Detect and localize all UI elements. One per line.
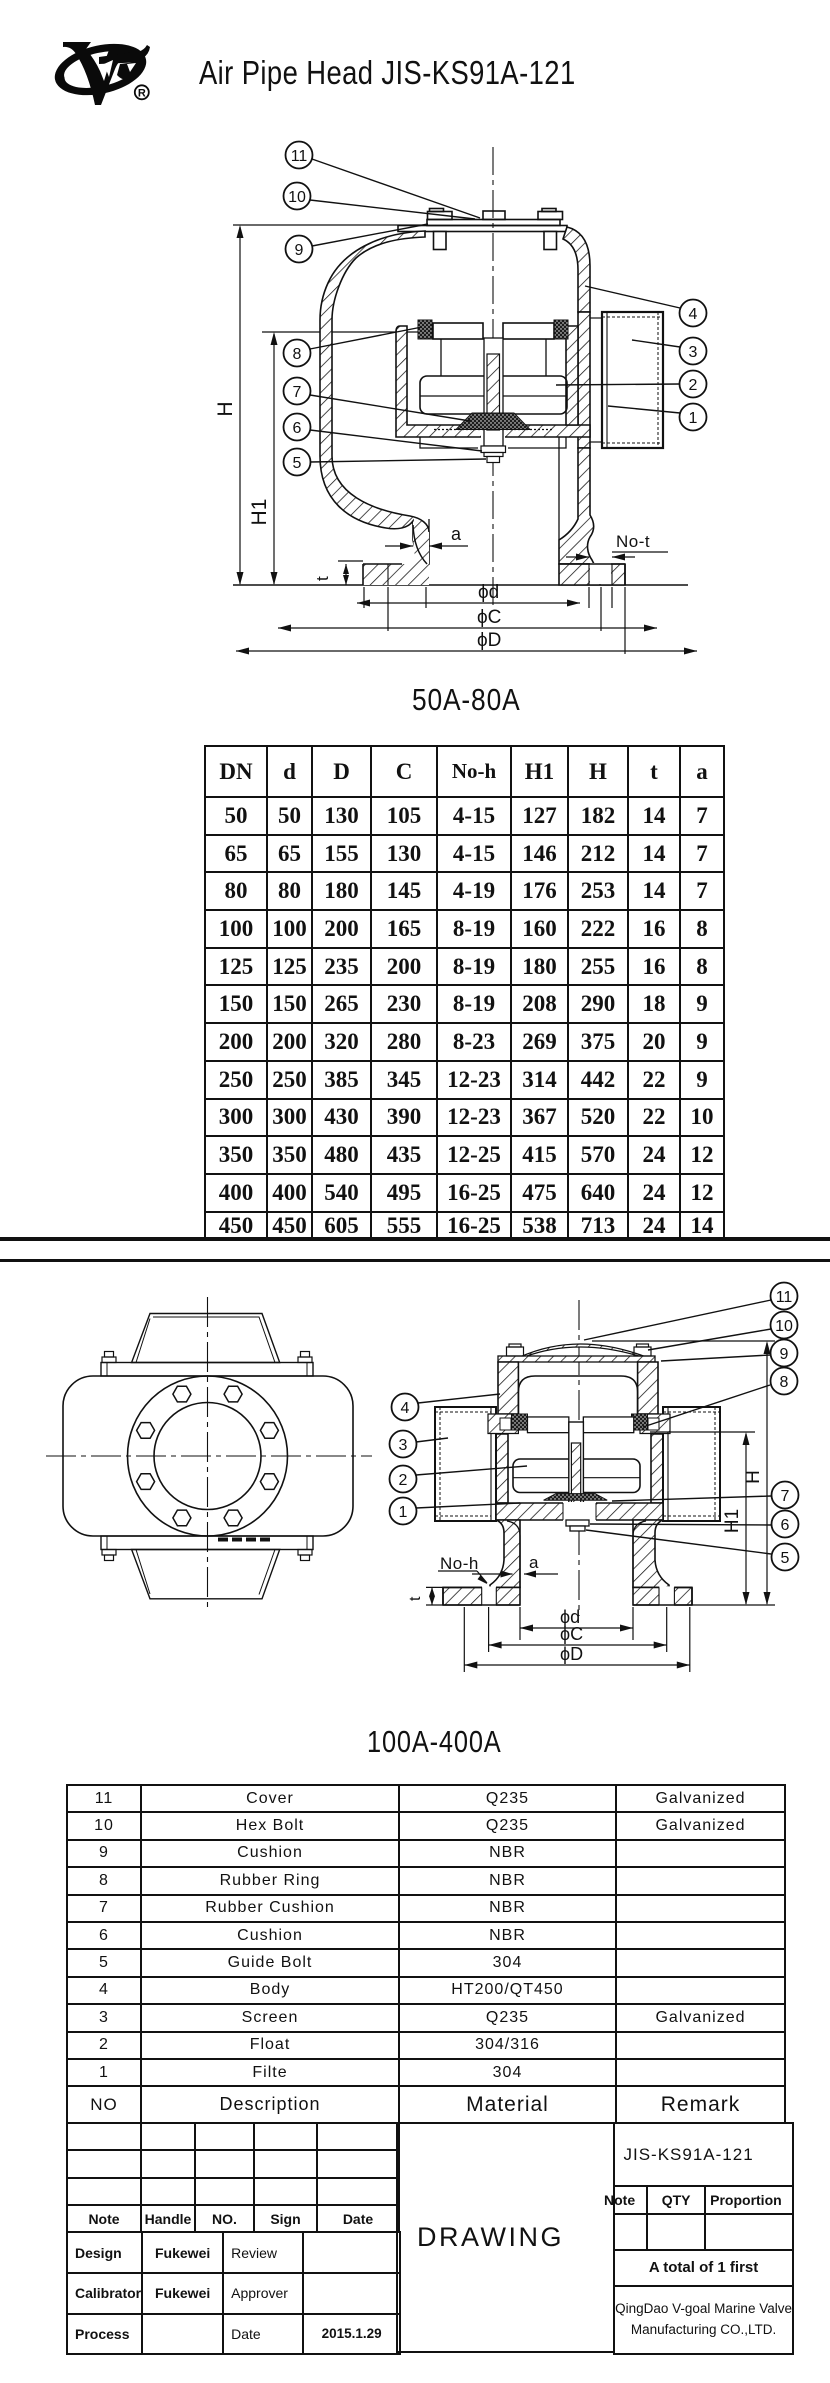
svg-text:ϕC: ϕC (477, 607, 501, 628)
svg-text:2: 2 (689, 377, 698, 394)
svg-text:9: 9 (295, 242, 304, 259)
svg-text:a: a (529, 1553, 539, 1572)
svg-text:3: 3 (689, 344, 698, 361)
svg-text:10: 10 (775, 1318, 793, 1335)
svg-text:5: 5 (781, 1550, 790, 1567)
svg-text:8: 8 (293, 346, 302, 363)
svg-text:1: 1 (689, 410, 698, 427)
svg-text:7: 7 (293, 384, 302, 401)
svg-text:1: 1 (399, 1504, 408, 1521)
svg-text:R: R (138, 88, 146, 100)
svg-text:4: 4 (401, 1400, 410, 1417)
svg-text:a: a (451, 524, 462, 544)
svg-text:H: H (214, 401, 237, 416)
svg-text:ϕD: ϕD (560, 1644, 583, 1664)
svg-text:ϕD: ϕD (477, 630, 501, 651)
svg-text:ϕd: ϕd (478, 582, 499, 603)
svg-text:H1: H1 (722, 1509, 743, 1533)
svg-text:6: 6 (293, 420, 302, 437)
svg-text:H1: H1 (248, 499, 271, 526)
svg-text:11: 11 (291, 148, 308, 165)
svg-text:6: 6 (781, 1517, 790, 1534)
svg-text:7: 7 (781, 1488, 790, 1505)
svg-text:9: 9 (780, 1346, 789, 1363)
svg-text:5: 5 (293, 455, 302, 472)
svg-text:t: t (313, 576, 332, 581)
svg-text:4: 4 (689, 306, 698, 323)
svg-text:ϕC: ϕC (560, 1624, 583, 1644)
svg-text:3: 3 (399, 1437, 408, 1454)
svg-text:t: t (407, 1596, 424, 1601)
svg-text:8: 8 (780, 1374, 789, 1391)
svg-text:No-h: No-h (440, 1554, 479, 1573)
svg-text:No-t: No-t (616, 532, 650, 551)
svg-text:2: 2 (399, 1472, 408, 1489)
svg-text:11: 11 (776, 1289, 793, 1306)
svg-text:10: 10 (288, 189, 306, 206)
